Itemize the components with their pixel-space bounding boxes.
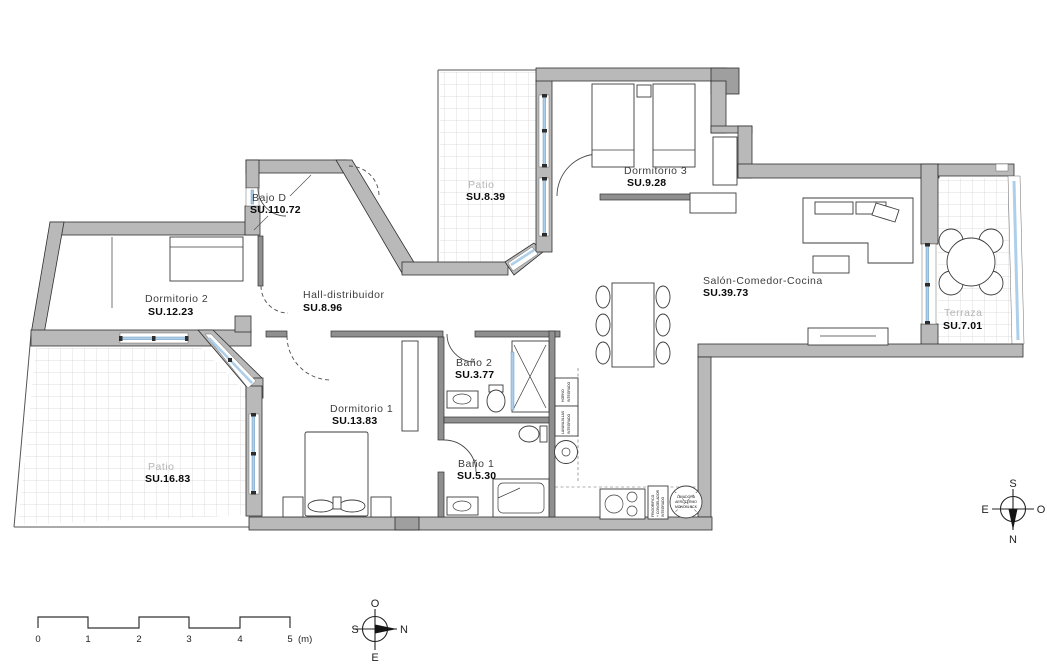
pillow xyxy=(308,500,334,512)
label-bano-1: Baño 1 SU.5.30 xyxy=(457,458,496,482)
oven-label-2: INTEGRADO xyxy=(567,381,571,402)
washbasin xyxy=(447,391,478,408)
shower-screen xyxy=(511,352,514,410)
room-area: SU.3.77 xyxy=(455,369,494,381)
bed-single xyxy=(653,84,695,167)
bathtub xyxy=(493,479,549,517)
kitchen-sink xyxy=(555,441,578,464)
sofa-cushion xyxy=(815,202,853,214)
wall xyxy=(536,68,726,81)
toilet xyxy=(519,426,539,442)
wall-banos-left xyxy=(438,337,444,440)
sliding-door-terraza xyxy=(922,243,936,325)
label-dormitorio-1: Dormitorio 1 SU.13.83 xyxy=(330,403,393,427)
dishwasher-label-1: LAVAVAJILLAS xyxy=(561,410,565,434)
label-terraza: Terraza SU.7.01 xyxy=(943,307,983,332)
room-area: SU.7.01 xyxy=(943,320,982,332)
wall-slanted xyxy=(31,222,64,334)
compass-site: S E O N xyxy=(981,478,1045,546)
compass-letter-bottom: N xyxy=(1009,534,1017,546)
toilet xyxy=(487,390,505,412)
room-area: SU.16.83 xyxy=(145,473,190,485)
bed-runner xyxy=(333,497,341,509)
tile-area xyxy=(18,348,246,525)
patio-top-tiles xyxy=(438,70,537,262)
room-name: Patio xyxy=(148,461,174,473)
wall-pillar xyxy=(395,517,419,530)
fridge-label-2: + CONGELADOR xyxy=(656,489,660,517)
heater-label-2: AEROTERMO xyxy=(675,500,697,504)
wall-bano2-top xyxy=(475,331,560,337)
compass-letter-left: S xyxy=(351,624,358,636)
tv-sideboard xyxy=(808,328,888,345)
room-name: Dormitorio 3 xyxy=(624,165,687,177)
heater-label-1: LAVADORA xyxy=(677,495,696,499)
wall-notch xyxy=(996,164,1008,171)
fridge-label-3: INTEGRADO xyxy=(661,496,665,517)
compass-needle xyxy=(375,625,397,634)
kitchen: HORNO INTEGRADO LAVAVAJILLAS INTEGRADO F… xyxy=(555,368,703,519)
compass-plan: O S N E xyxy=(351,598,408,664)
room-name: Salón-Comedor-Cocina xyxy=(703,275,823,287)
label-salon: Salón-Comedor-Cocina SU.39.73 xyxy=(703,275,823,299)
compass-letter-top: S xyxy=(1009,478,1016,490)
wall xyxy=(246,160,347,173)
scale-bar-line xyxy=(38,617,290,628)
chair xyxy=(656,314,670,336)
compass-letter-right: O xyxy=(1037,504,1046,516)
tile-area xyxy=(440,72,536,262)
bed-single xyxy=(592,84,634,167)
terraza-furniture xyxy=(939,229,1003,295)
wall-dorm1-top xyxy=(331,331,443,337)
wall xyxy=(50,222,258,235)
room-name: Baño 1 xyxy=(458,458,494,470)
nightstand xyxy=(637,85,651,97)
chair xyxy=(656,286,670,308)
wall xyxy=(921,164,938,244)
coffee-table xyxy=(813,256,849,273)
door-arc-dorm1 xyxy=(287,336,331,380)
heater-label-3: MONOBLOCK xyxy=(675,505,698,509)
wall-banos-divider xyxy=(444,417,560,423)
toilet-tank xyxy=(540,426,547,442)
wall xyxy=(246,160,259,188)
wardrobe xyxy=(402,341,418,431)
dishwasher-label-2: INTEGRADO xyxy=(567,413,571,434)
closet xyxy=(713,137,737,185)
leader-line xyxy=(290,175,311,196)
compass-letter-left: E xyxy=(981,504,988,516)
label-dormitorio-2: Dormitorio 2 SU.12.23 xyxy=(145,293,208,318)
scale-tick-1: 1 xyxy=(85,634,90,645)
room-area: SU.12.23 xyxy=(148,306,193,318)
room-area: SU.13.83 xyxy=(332,415,377,427)
scale-tick-0: 0 xyxy=(35,634,40,645)
fridge-label-1: FRIGORIFICO xyxy=(651,494,655,517)
cooktop xyxy=(600,489,645,519)
wall-diagonal xyxy=(336,160,415,273)
wall xyxy=(235,316,251,332)
chair xyxy=(596,286,610,308)
door-arc-dorm2 xyxy=(261,286,288,313)
room-name: Dormitorio 1 xyxy=(330,403,393,415)
wall-dorm1-top xyxy=(266,331,287,337)
scale-bar: 0 1 2 3 4 5 (m) xyxy=(35,617,312,645)
scale-tick-4: 4 xyxy=(237,634,242,645)
washbasin xyxy=(447,497,478,515)
chair xyxy=(596,342,610,364)
wall xyxy=(402,262,508,275)
compass-letter-top: O xyxy=(371,598,380,610)
chair xyxy=(596,314,610,336)
room-name: Hall-distribuidor xyxy=(303,289,384,301)
room-area: SU.5.30 xyxy=(457,470,496,482)
oven-label-1: HORNO xyxy=(561,389,565,402)
room-area: SU.8.96 xyxy=(303,302,342,314)
patio-bottom-tiles xyxy=(14,334,250,527)
room-area: SU.8.39 xyxy=(466,191,505,203)
wall-banos-left xyxy=(438,472,444,517)
compass-needle xyxy=(1009,509,1018,530)
room-area: SU.110.72 xyxy=(250,204,301,216)
window-patio-right-upper xyxy=(539,94,549,168)
wall-banos-right xyxy=(549,331,555,517)
room-name: Bajo D xyxy=(252,192,287,204)
room-name: Terraza xyxy=(944,307,983,319)
scale-unit: (m) xyxy=(298,634,312,645)
floor-plan-sheet: HORNO INTEGRADO LAVAVAJILLAS INTEGRADO F… xyxy=(0,0,1047,667)
room-name: Baño 2 xyxy=(456,357,492,369)
kitchen-counter-top xyxy=(690,193,736,213)
label-bano-2: Baño 2 SU.3.77 xyxy=(455,357,494,381)
wall-dorm2-hall xyxy=(258,236,263,286)
window-dormitorio2 xyxy=(119,333,189,343)
scale-tick-3: 3 xyxy=(186,634,191,645)
room-name: Patio xyxy=(468,179,494,191)
pillow xyxy=(339,500,365,512)
dining-table xyxy=(612,283,654,367)
wall xyxy=(738,164,939,178)
terrace-table xyxy=(947,238,995,286)
compass-letter-right: N xyxy=(400,624,408,636)
wall xyxy=(711,81,726,133)
nightstand xyxy=(371,497,391,517)
room-name: Dormitorio 2 xyxy=(145,293,208,305)
label-dormitorio-3: Dormitorio 3 SU.9.28 xyxy=(624,165,687,189)
scale-tick-5: 5 xyxy=(287,634,292,645)
label-hall: Hall-distribuidor SU.8.96 xyxy=(303,289,384,314)
wall xyxy=(698,344,1023,357)
window-patio-right-lower xyxy=(539,177,549,237)
room-area: SU.9.28 xyxy=(627,177,666,189)
floor-plan-drawing: HORNO INTEGRADO LAVAVAJILLAS INTEGRADO F… xyxy=(0,0,1047,667)
room-area: SU.39.73 xyxy=(703,287,748,299)
dormitorio1-furniture xyxy=(283,341,418,517)
wall xyxy=(698,357,711,517)
nightstand xyxy=(283,497,303,517)
scale-tick-2: 2 xyxy=(136,634,141,645)
compass-letter-bottom: E xyxy=(371,652,378,664)
chair xyxy=(656,342,670,364)
window-dormitorio1 xyxy=(249,413,259,495)
bed-double xyxy=(170,237,243,281)
